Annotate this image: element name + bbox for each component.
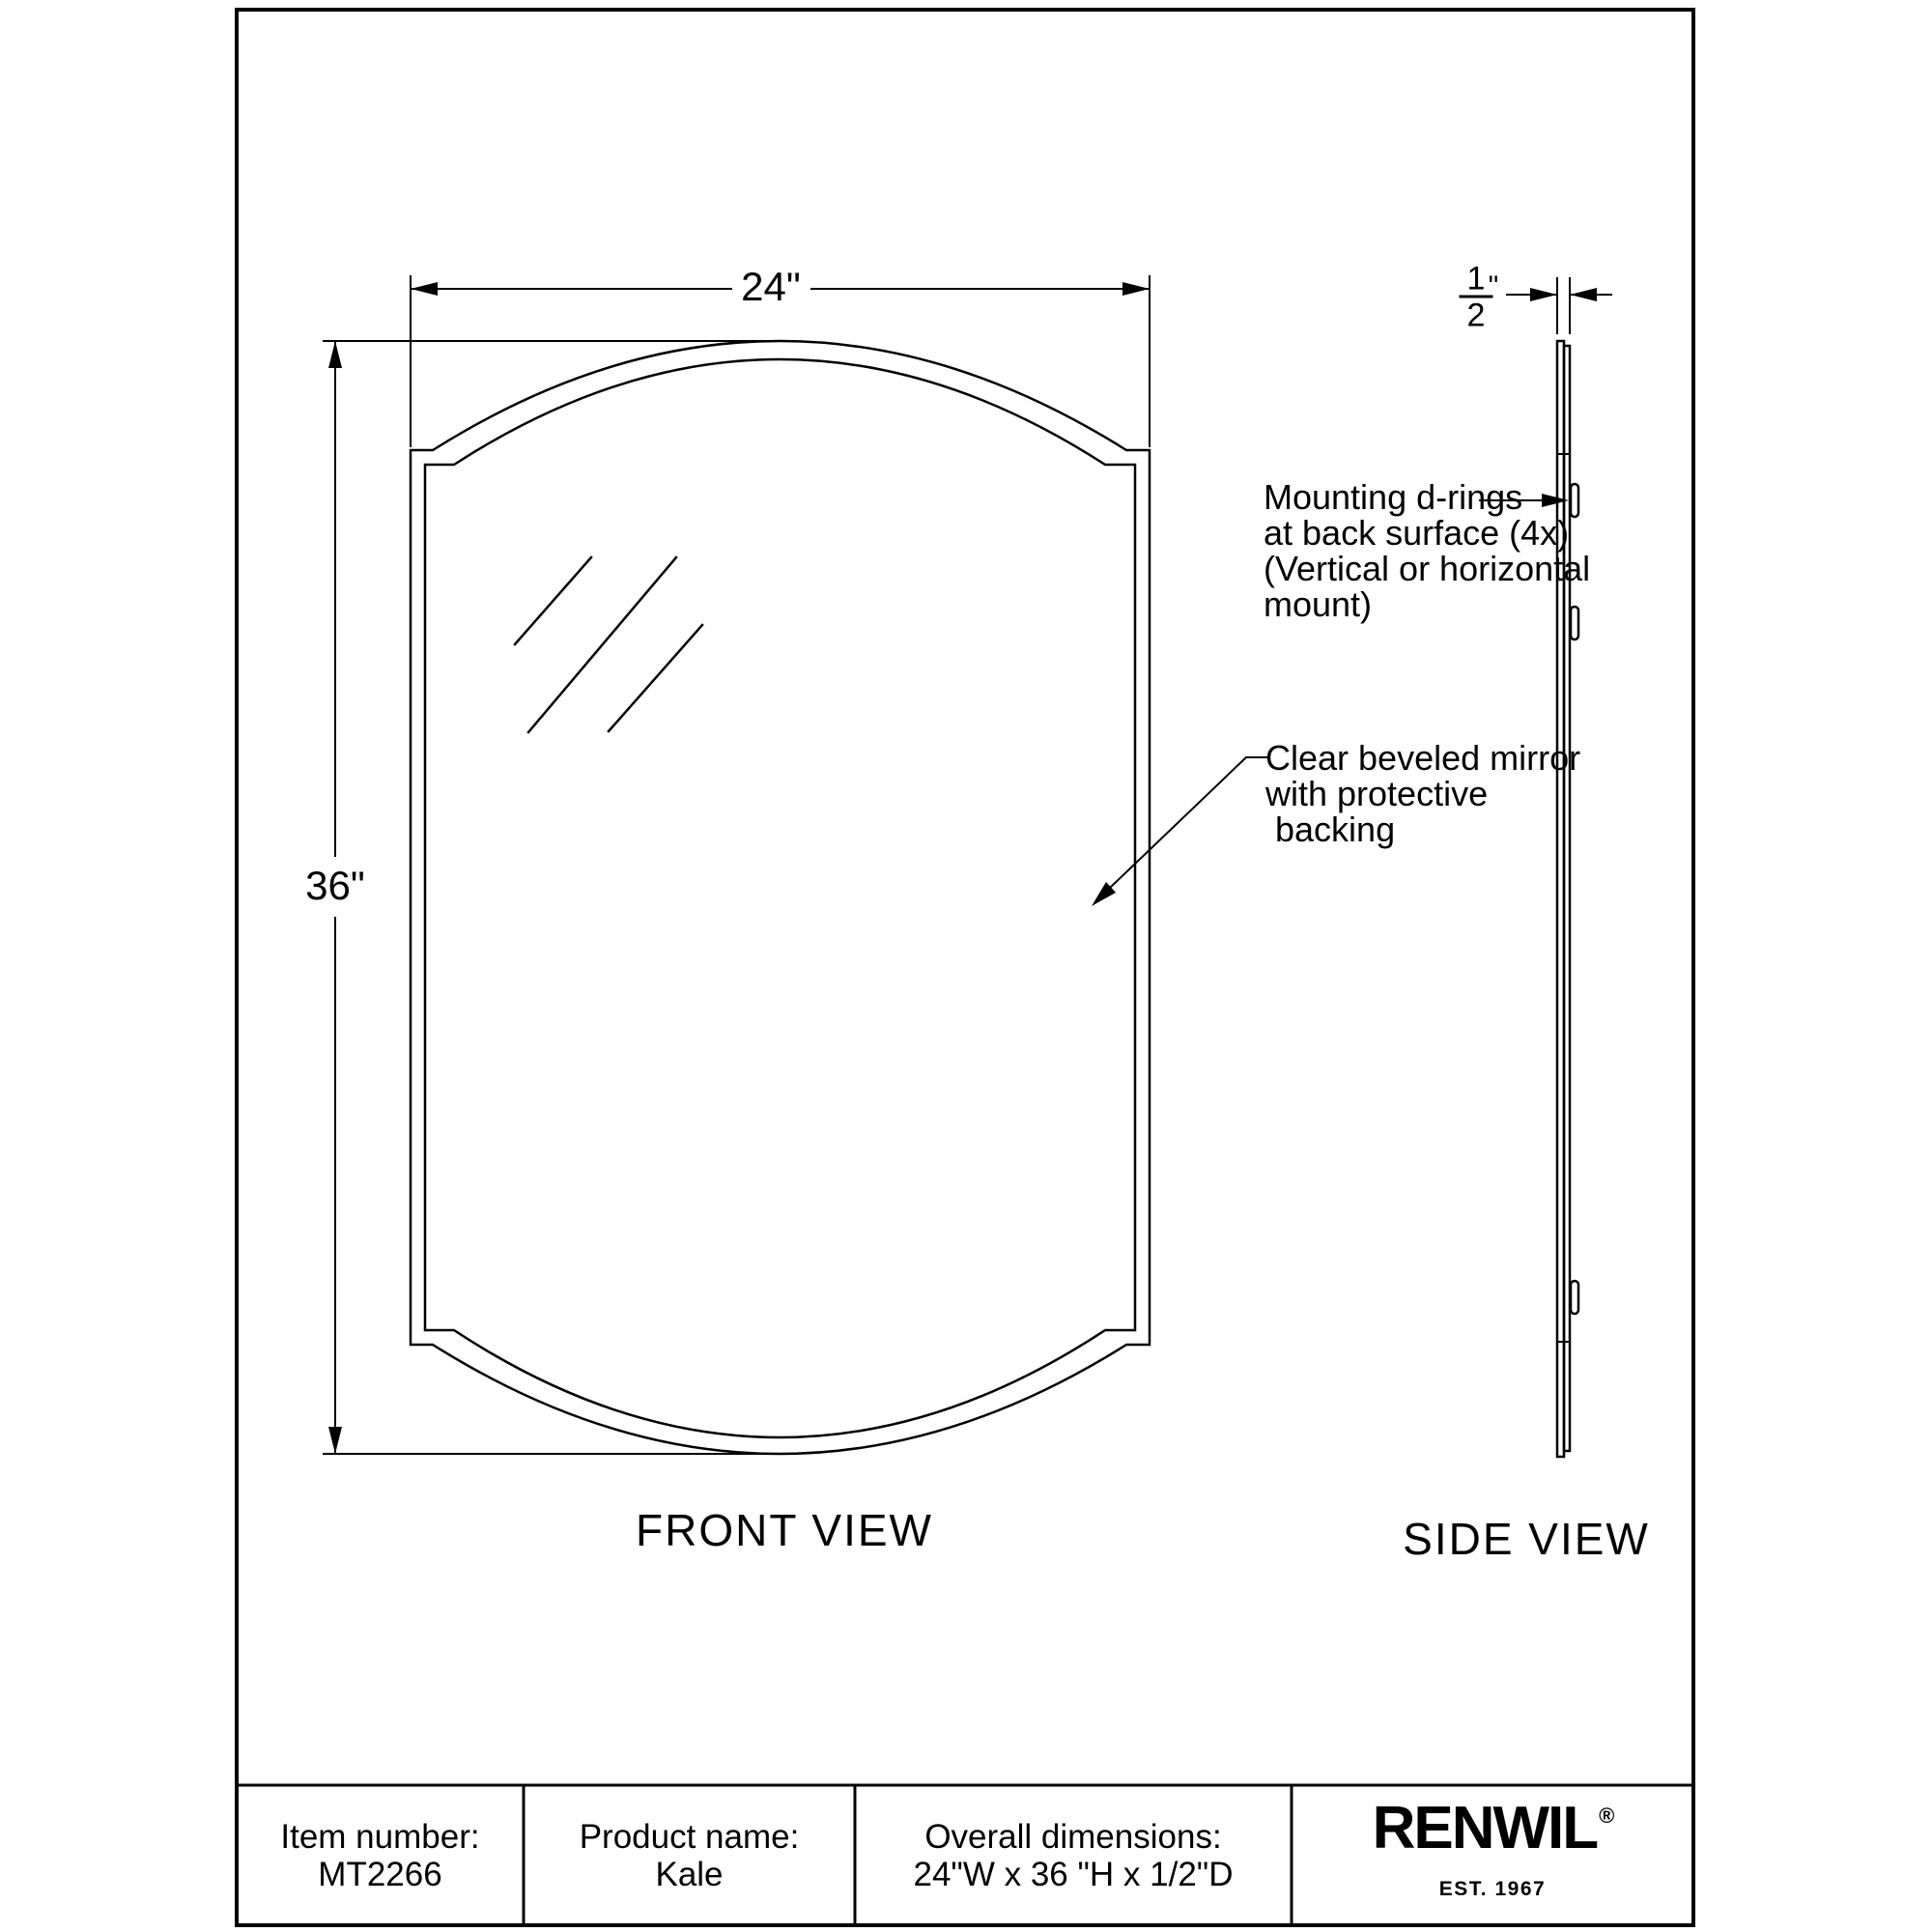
height-dim-label: 36" xyxy=(305,863,365,909)
annotation-line: (Vertical or horizontal xyxy=(1264,551,1590,586)
d-ring xyxy=(1571,1281,1578,1314)
overall-dimensions-label: Overall dimensions: xyxy=(924,1818,1221,1856)
annotation-line: backing xyxy=(1265,811,1580,847)
depth-dim-inch-mark: " xyxy=(1489,270,1499,303)
registered-trademark-mark: ® xyxy=(1599,1804,1614,1828)
arrowhead xyxy=(1122,282,1150,296)
product-name-label: Product name: xyxy=(580,1818,800,1856)
technical-drawing-sheet: 24" 36" 1 2 " Mounting d-rings at back s… xyxy=(0,0,1932,1932)
brand-established: EST. 1967 xyxy=(1439,1870,1546,1908)
arrowhead xyxy=(1530,288,1557,301)
front-view-outer-outline xyxy=(411,341,1150,1454)
title-block-item-cell: Item number: MT2266 xyxy=(237,1787,524,1923)
product-name-value: Kale xyxy=(655,1856,723,1893)
annotation-mirror: Clear beveled mirror with protective bac… xyxy=(1265,740,1580,847)
annotation-line: mount) xyxy=(1264,586,1590,622)
arrowhead xyxy=(411,282,438,296)
brand-name: RENWIL xyxy=(1373,1795,1598,1861)
depth-dim-denominator: 2 xyxy=(1467,298,1486,335)
annotation-line: with protective xyxy=(1265,776,1580,811)
width-dim-label: 24" xyxy=(741,264,801,310)
mirror-leader xyxy=(1092,757,1267,906)
annotation-mounting-rings: Mounting d-rings at back surface (4x) (V… xyxy=(1264,479,1590,622)
overall-dimensions-value: 24"W x 36 "H x 1/2"D xyxy=(914,1856,1234,1893)
height-dimension xyxy=(324,341,773,1454)
side-view-label: SIDE VIEW xyxy=(1403,1513,1650,1565)
depth-dim-numerator: 1 xyxy=(1467,261,1486,298)
item-number-label: Item number: xyxy=(280,1818,479,1856)
item-number-value: MT2266 xyxy=(318,1856,441,1893)
annotation-line: Mounting d-rings xyxy=(1264,479,1590,515)
arrowhead xyxy=(328,341,342,368)
front-view-inner-outline xyxy=(425,359,1135,1437)
drawing-linework xyxy=(0,0,1932,1932)
glass-reflection-lines xyxy=(515,557,702,732)
title-block-dimensions-cell: Overall dimensions: 24"W x 36 "H x 1/2"D xyxy=(855,1787,1292,1923)
arrowhead xyxy=(1570,288,1597,301)
title-block-product-cell: Product name: Kale xyxy=(524,1787,855,1923)
brand-logo: RENWIL® xyxy=(1373,1804,1613,1866)
arrowhead xyxy=(328,1427,342,1454)
annotation-line: Clear beveled mirror xyxy=(1265,740,1580,776)
title-block-brand-cell: RENWIL® EST. 1967 xyxy=(1292,1787,1693,1923)
front-view-label: FRONT VIEW xyxy=(636,1504,933,1556)
annotation-line: at back surface (4x) xyxy=(1264,515,1590,551)
